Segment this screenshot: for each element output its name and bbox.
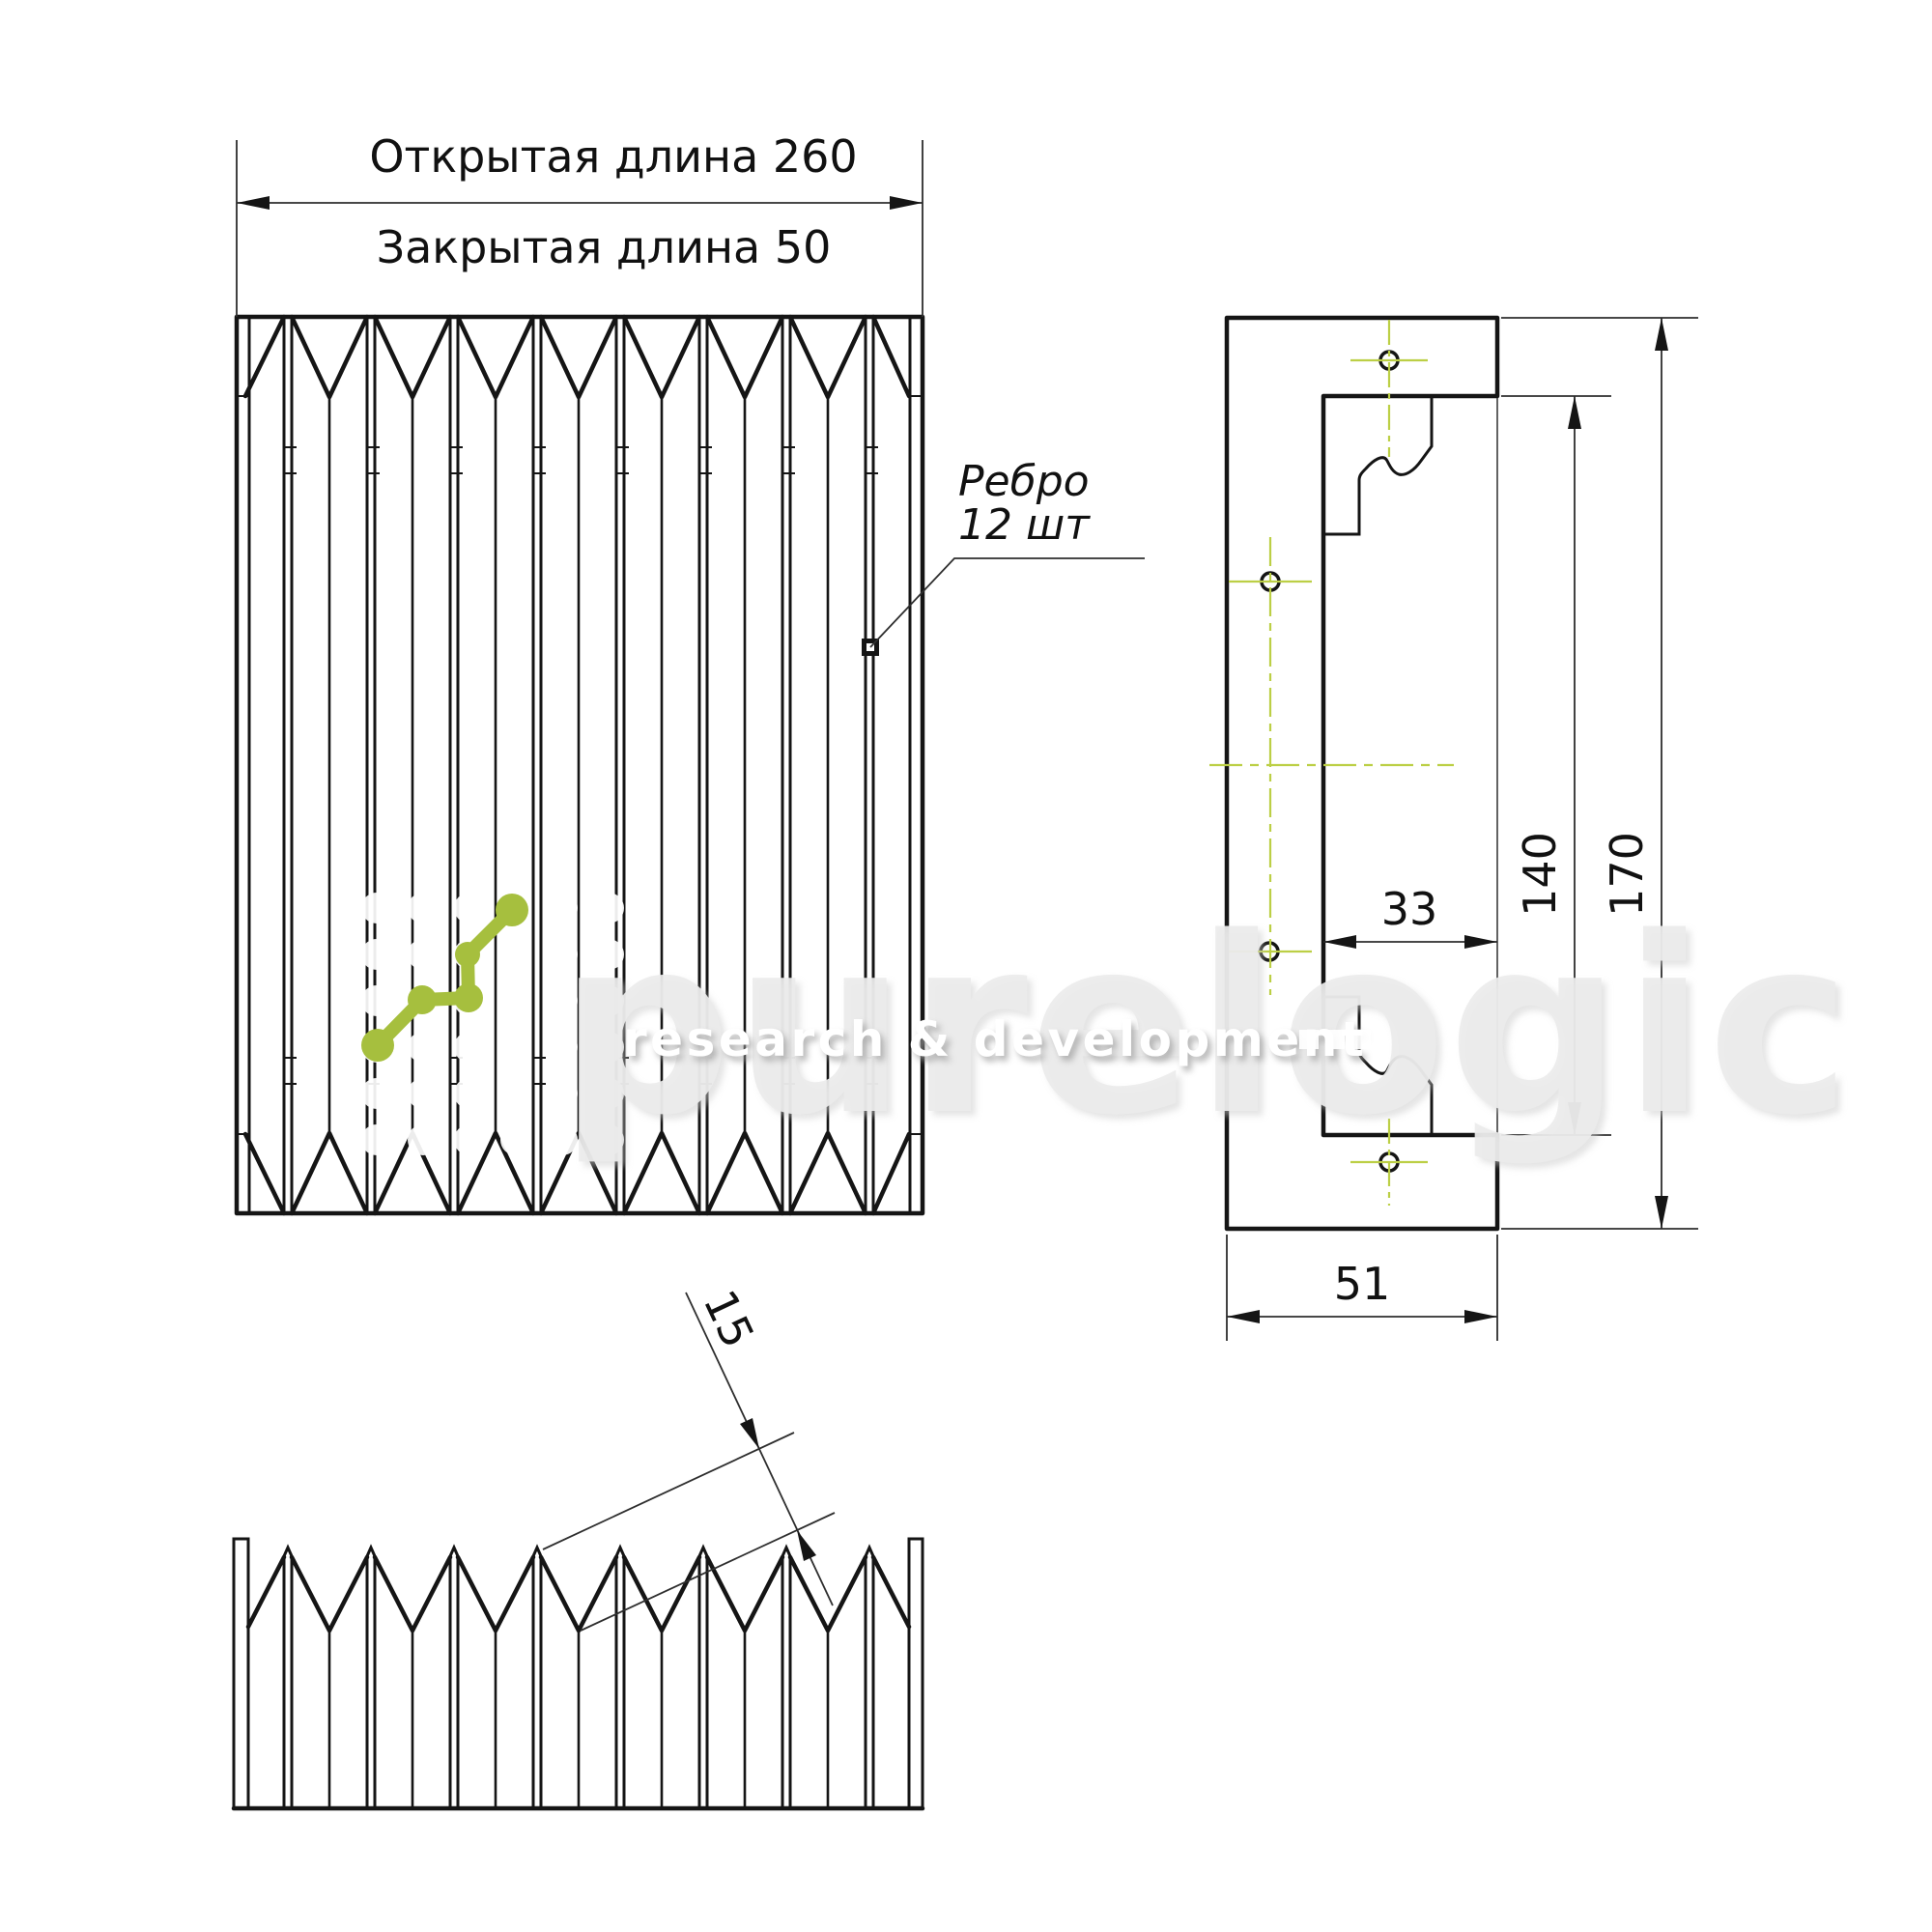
rib-leader-line [870, 558, 1145, 647]
watermark-end-squares [1299, 1030, 1371, 1049]
rib-leader-note: Ребро 12 шт [862, 457, 1145, 656]
dim-51-label: 51 [1334, 1258, 1391, 1310]
front-dim-arrow-right [890, 196, 923, 210]
closed-length-label: Закрытая длина 50 [377, 221, 832, 273]
front-dimension-length: Открытая длина 260 Закрытая длина 50 [237, 130, 923, 317]
front-top-fold-edges [245, 317, 909, 397]
bottom-fold-edges [248, 1557, 909, 1631]
side-dimension-51: 51 [1227, 1235, 1497, 1341]
bottom-view [234, 1539, 923, 1808]
watermark-tagline: research & development [623, 1011, 1367, 1067]
side-top-pocket [1324, 396, 1432, 534]
open-length-label: Открытая длина 260 [369, 130, 857, 183]
watermark: purelogic purelogic research & developme… [361, 886, 1858, 1174]
drawing-sheet: Открытая длина 260 Закрытая длина 50 Реб… [0, 0, 1932, 1932]
rib-note-line2: 12 шт [958, 500, 1091, 550]
bottom-valley-lines [329, 1631, 828, 1808]
front-dim-arrow-left [237, 196, 270, 210]
bottom-peak-caps [284, 1548, 873, 1556]
bellows-drawing: Открытая длина 260 Закрытая длина 50 Реб… [0, 0, 1932, 1932]
rib-note-line1: Ребро [958, 457, 1090, 506]
dim-15-label: 15 [694, 1282, 765, 1355]
